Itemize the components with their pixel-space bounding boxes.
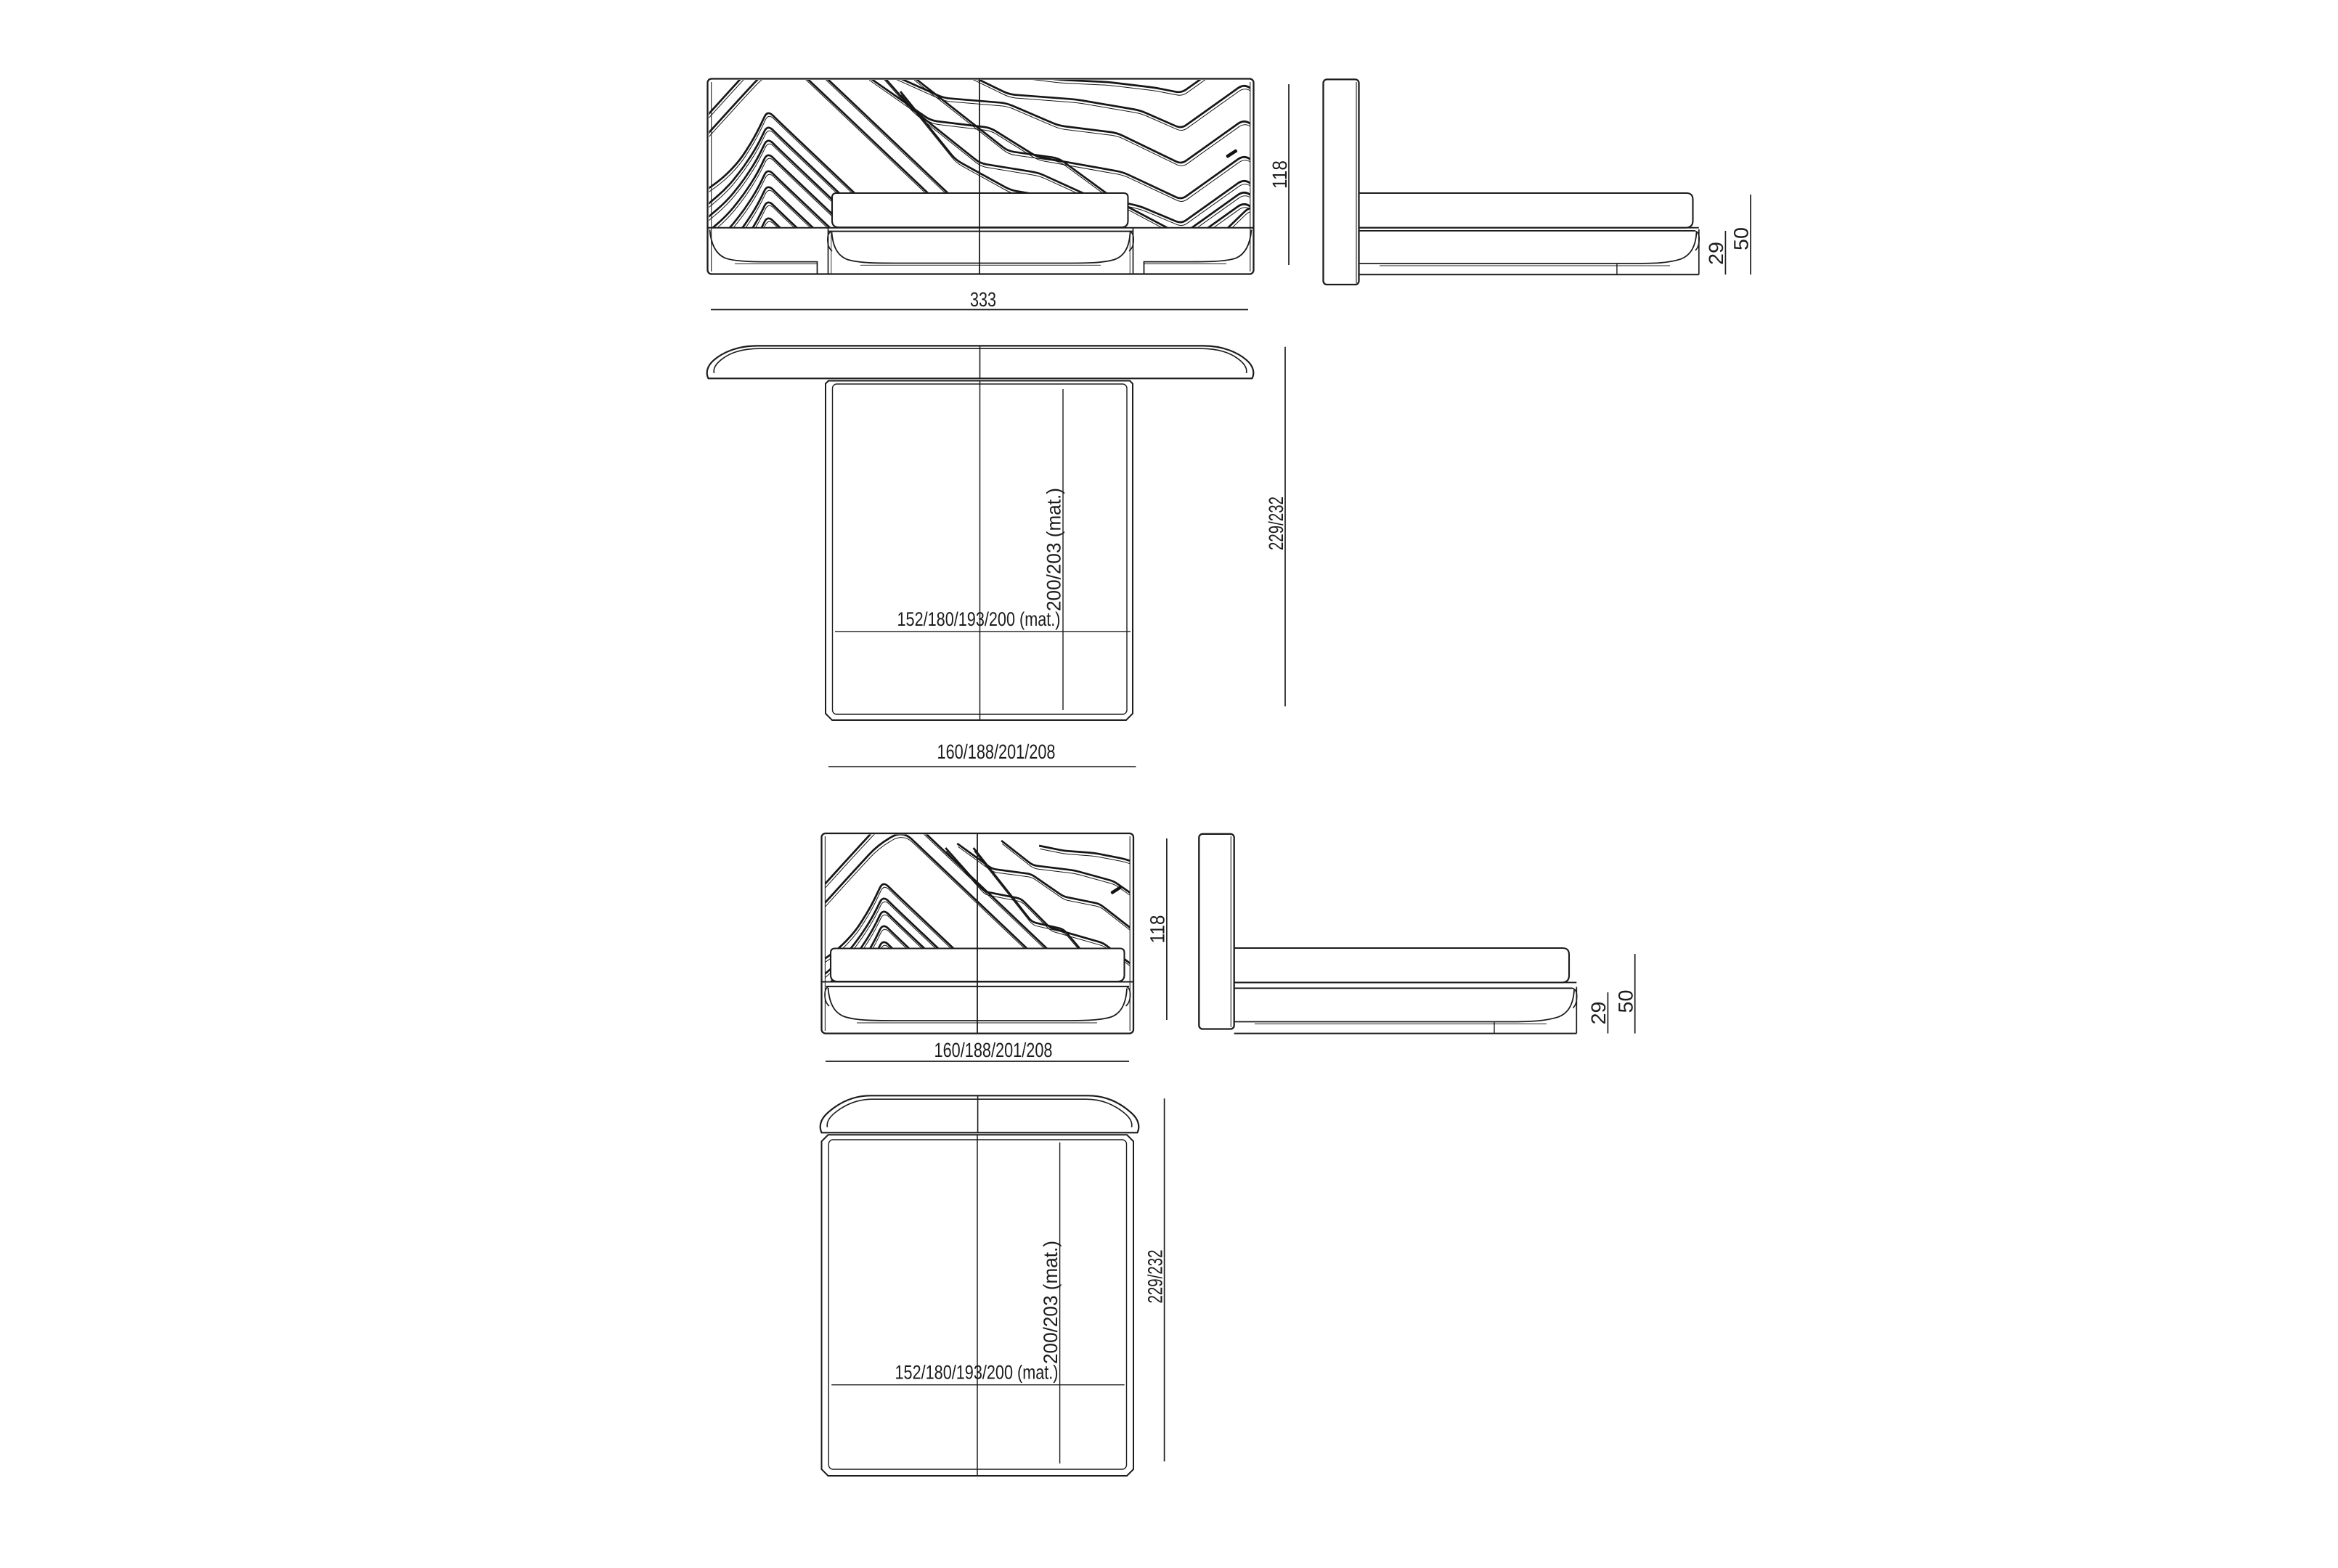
svg-text:118: 118 — [1146, 915, 1169, 944]
svg-text:152/180/193/200 (mat.): 152/180/193/200 (mat.) — [895, 1362, 1059, 1384]
svg-text:229/232: 229/232 — [1265, 497, 1287, 550]
svg-text:50: 50 — [1615, 990, 1637, 1013]
svg-text:160/188/201/208: 160/188/201/208 — [934, 1039, 1053, 1061]
svg-text:50: 50 — [1730, 227, 1753, 250]
svg-text:200/203 (mat.): 200/203 (mat.) — [1040, 1241, 1062, 1364]
svg-text:152/180/193/200 (mat.): 152/180/193/200 (mat.) — [897, 608, 1061, 630]
svg-text:29: 29 — [1705, 242, 1727, 265]
svg-text:118: 118 — [1268, 160, 1291, 189]
svg-text:229/232: 229/232 — [1144, 1250, 1167, 1304]
svg-text:200/203 (mat.): 200/203 (mat.) — [1043, 488, 1065, 611]
svg-text:29: 29 — [1587, 1002, 1610, 1025]
svg-text:160/188/201/208: 160/188/201/208 — [937, 740, 1056, 763]
svg-text:333: 333 — [970, 288, 996, 311]
